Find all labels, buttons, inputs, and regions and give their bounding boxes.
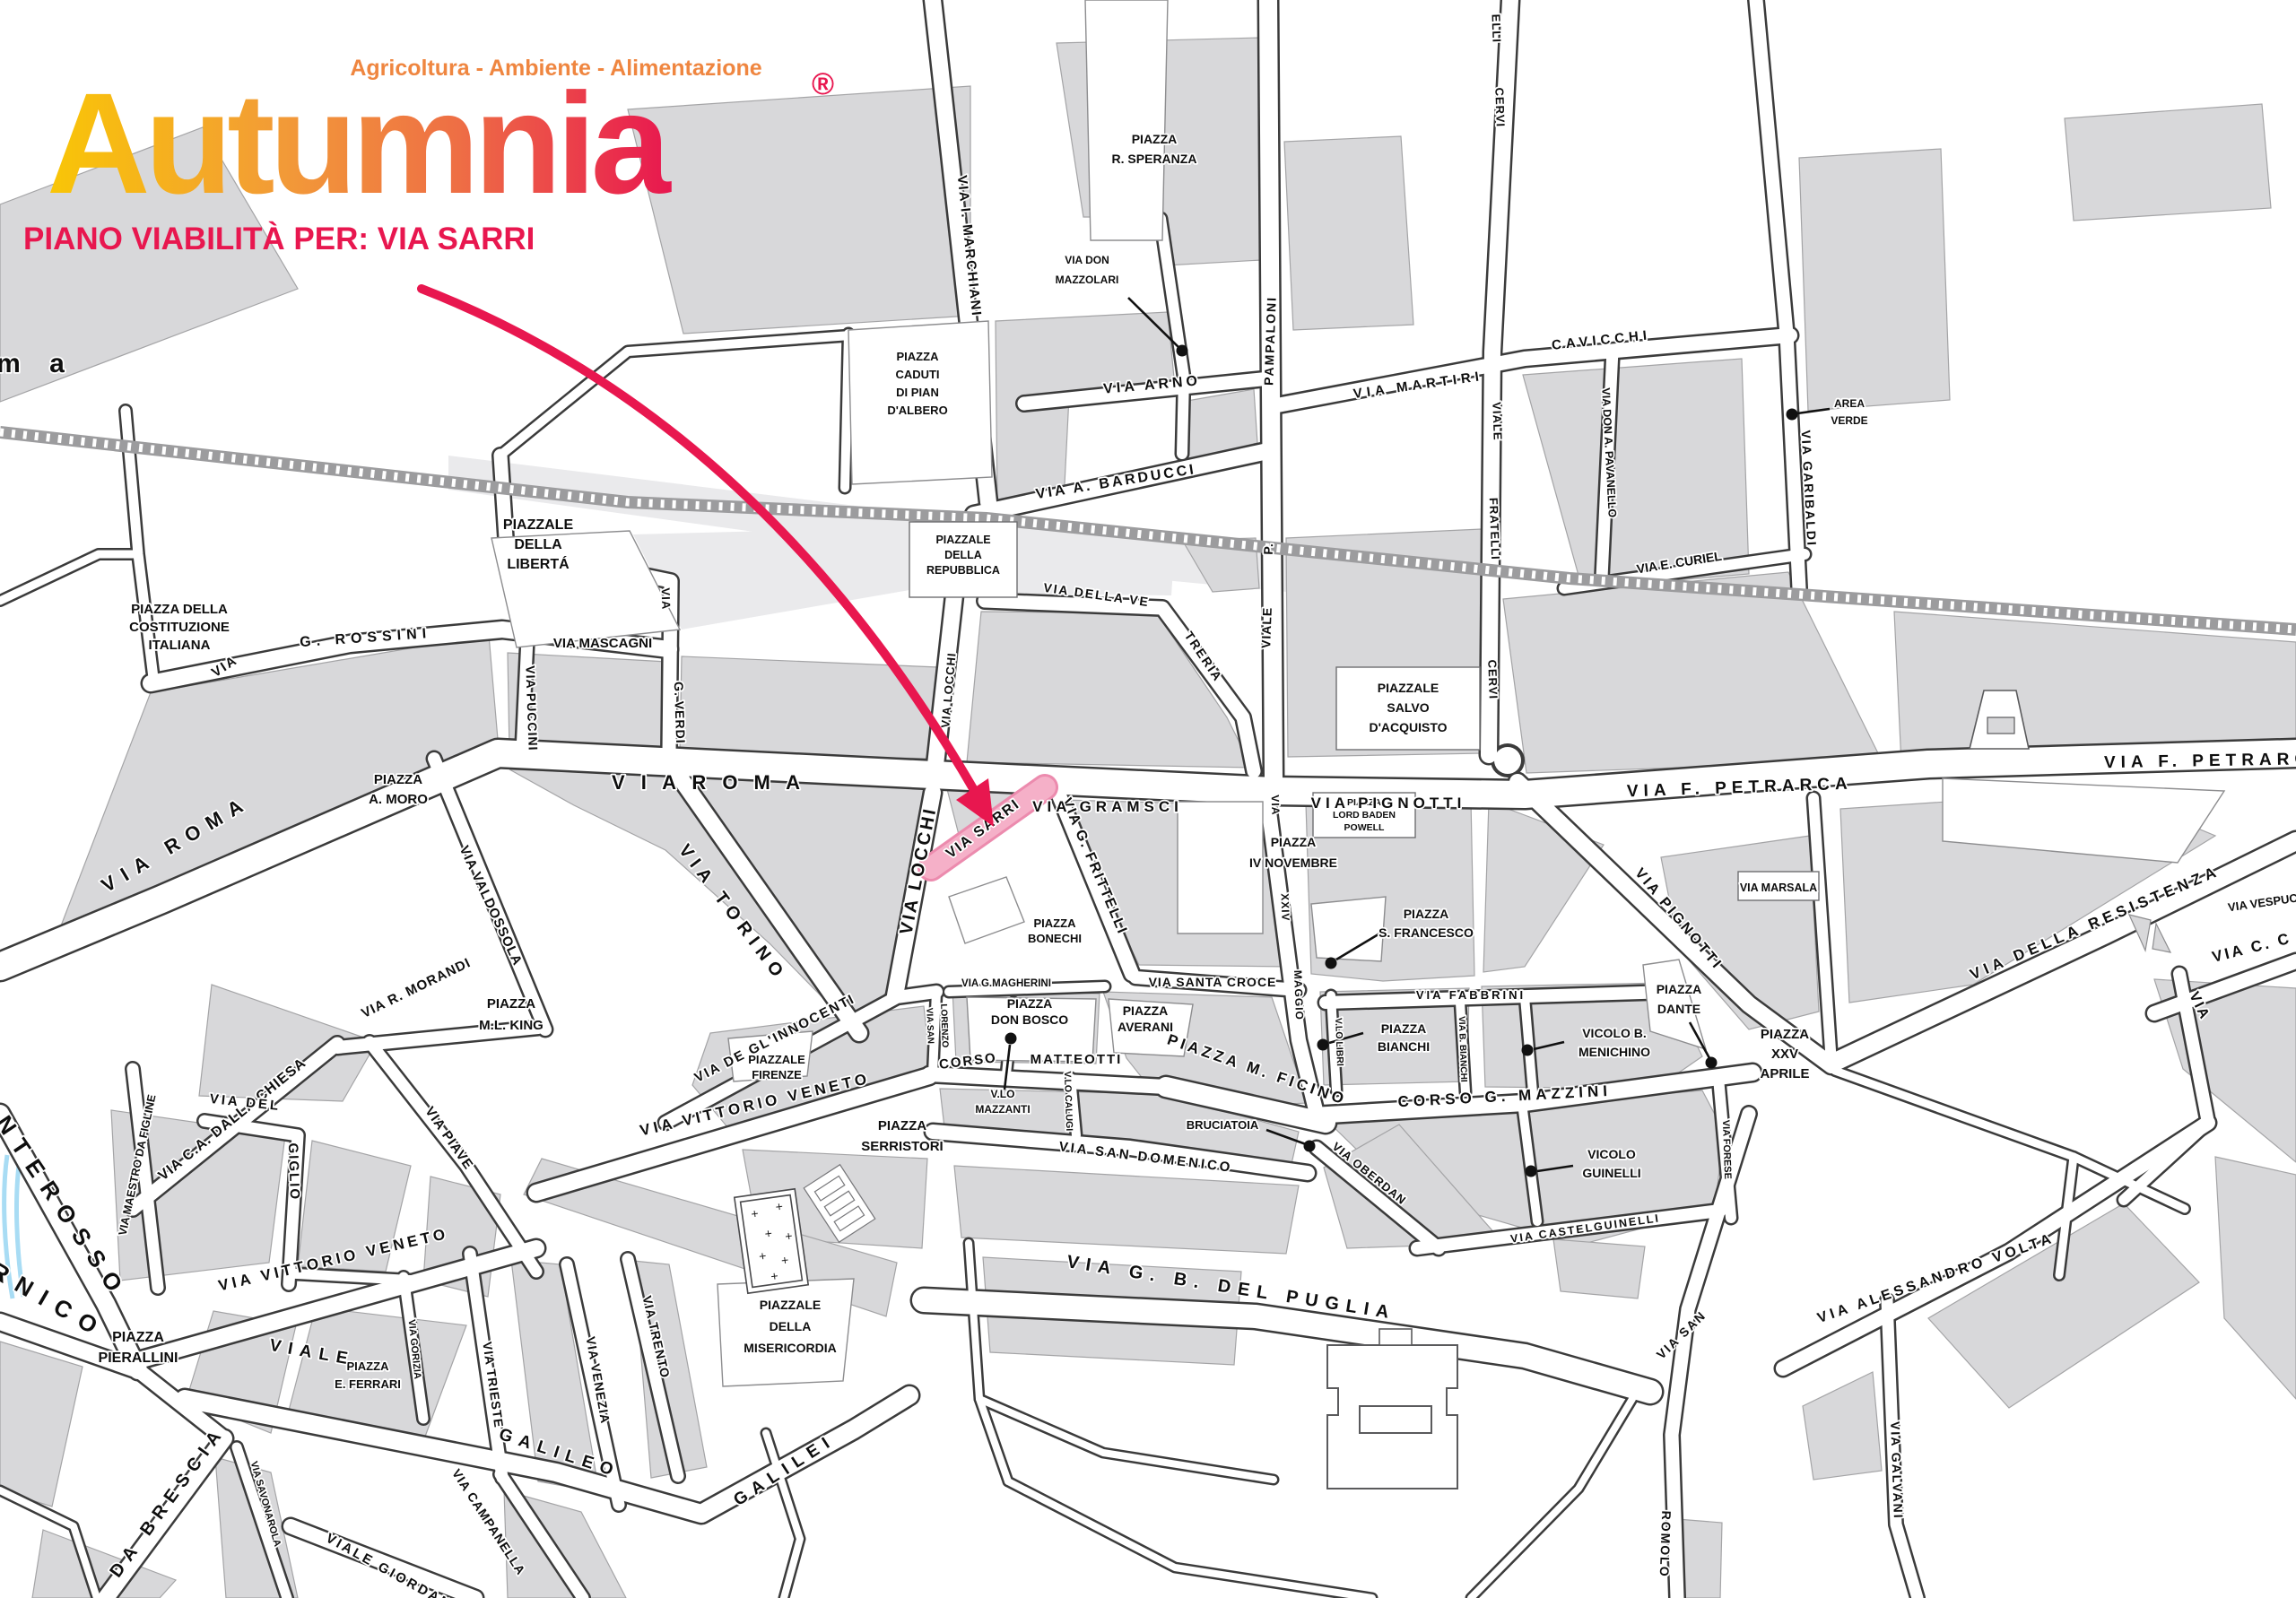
map-subtitle: PIANO VIABILITÀ PER: VIA SARRI [23, 221, 535, 256]
street-label: PIAZZALE [1378, 681, 1439, 695]
street-label: VIA MARSALA [1740, 882, 1817, 894]
street-label: DI PIAN [896, 386, 939, 399]
street-label: V.LO [991, 1088, 1015, 1100]
street-label: PIAZZALE [935, 534, 990, 546]
street-label: m a [0, 349, 75, 378]
street-label: PIAZZA [1657, 982, 1702, 996]
street-label: ITALIANA [149, 638, 211, 653]
street-label: BRUCIATOIA [1187, 1118, 1259, 1132]
street-label: MAGGIO [1291, 970, 1306, 1020]
street-label: PIAZZA [878, 1118, 926, 1133]
street-label: LORENZO [938, 1003, 950, 1047]
city-block [1799, 149, 1950, 411]
street-label: VIA MASCAGNI [553, 636, 652, 651]
street-label: E. FERRARI [335, 1377, 401, 1391]
street-label: APRILE [1760, 1066, 1809, 1081]
street-label: XXIV [1278, 893, 1291, 922]
street-label: DANTE [1657, 1002, 1700, 1016]
street-label: FRATELLI [1487, 498, 1502, 560]
street-label: PIAZZA [1123, 1003, 1169, 1018]
street-label: REPUBBLICA [926, 564, 1000, 577]
street-label: LIBERTÁ [507, 555, 570, 572]
street-label: PIAZZA DELLA [131, 602, 228, 617]
overpass-inner [1987, 717, 2014, 734]
street-label: VIA PIGNOTTI [1311, 795, 1466, 812]
street-label: M.L. KING [479, 1018, 544, 1033]
street-label: MATTEOTTI [1031, 1052, 1123, 1067]
street-label: VIA SAN [924, 1008, 935, 1045]
poi-dot [1304, 1141, 1316, 1152]
street-label: MAZZANTI [975, 1103, 1030, 1116]
street-label: PIERALLINI [99, 1350, 178, 1366]
piazza [848, 321, 992, 484]
street-label: ROMOLO [1657, 1510, 1674, 1578]
street-label: PIAZZA [897, 350, 940, 363]
street-label: VICOLO B. [1582, 1026, 1647, 1040]
street-label: VICOLO [1587, 1147, 1636, 1161]
street-label: DELLA [770, 1319, 812, 1333]
city-block [1553, 1239, 1645, 1298]
street-label: D'ACQUISTO [1369, 720, 1447, 734]
street-label: D'ALBERO [887, 404, 947, 417]
street-label: VIA DON [1065, 254, 1109, 266]
city-map: +++++++m aPIAZZA DELLACOSTITUZIONEITALIA… [0, 0, 2296, 1598]
city-block [1284, 136, 1413, 330]
street-label: AVERANI [1118, 1020, 1173, 1034]
street-label: MAZZOLARI [1056, 274, 1119, 286]
cemetery-symbol: +++++++ [735, 1189, 808, 1293]
poi-dot [1522, 1045, 1534, 1056]
street-label: MISERICORDIA [744, 1341, 836, 1355]
street-label: PIAZZA [1381, 1021, 1427, 1036]
street-label: PIAZZA [1007, 996, 1053, 1011]
street-label: VIA [659, 587, 674, 610]
street-label: BONECHI [1028, 932, 1082, 945]
street-label: VIA PUCCINI [523, 665, 540, 751]
street-label: VIA SANTA CROCE [1149, 975, 1277, 989]
street-label: FIRENZE [752, 1068, 802, 1081]
street-label: MENICHINO [1578, 1045, 1650, 1059]
street-label: VIA [1269, 795, 1283, 815]
street-label: VIA FABBRINI [1416, 988, 1526, 1002]
street-label: CADUTI [895, 368, 939, 381]
street-label: XXV [1771, 1047, 1798, 1062]
road [1268, 0, 1274, 778]
street-label: PIAZZA [1132, 132, 1178, 146]
street-label: GIGLIO [285, 1142, 302, 1201]
street-label: V I A R O M A [612, 771, 805, 794]
street-label: R. SPERANZA [1112, 152, 1197, 166]
street-label: ELLI [1489, 14, 1503, 44]
road [845, 334, 848, 488]
street-label: BIANCHI [1378, 1039, 1430, 1054]
street-label: VIA G.MAGHERINI [961, 978, 1051, 989]
poi-dot [1318, 1039, 1329, 1051]
street-label: G. VERDI [672, 682, 688, 744]
street-label: PIAZZALE [748, 1053, 805, 1066]
poi-dot [1706, 1057, 1718, 1069]
street-label: V.LO LIBRI [1333, 1018, 1345, 1066]
poi-dot [1005, 1033, 1017, 1045]
logo-wordmark: Autumnia [47, 63, 672, 223]
poi-dot [1326, 958, 1337, 969]
street-label: A. MORO [369, 792, 428, 807]
page: +++++++m aPIAZZA DELLACOSTITUZIONEITALIA… [0, 0, 2296, 1598]
street-label: VERDE [1831, 414, 1867, 427]
street-label: VIALE [1258, 606, 1274, 648]
street-label: DON BOSCO [991, 1012, 1068, 1027]
street-label: GUINELLI [1582, 1166, 1640, 1180]
street-label: CERVI [1492, 87, 1508, 127]
street-label: V.LO CALUGI [1062, 1071, 1074, 1131]
school-entrance [1379, 1329, 1412, 1345]
roundabout [1494, 747, 1521, 774]
street-label: COSTITUZIONE [129, 620, 230, 635]
street-label: VIA FORESE [1720, 1120, 1733, 1180]
street-label: PIAZZA [112, 1330, 164, 1345]
street-label: DELLA [944, 549, 982, 561]
city-block [2065, 104, 2271, 221]
street-label: VIA F. PETRARCA [2104, 750, 2296, 772]
street-label: PIAZZA [374, 772, 422, 787]
poi-dot [1177, 345, 1188, 357]
street-label: VIA GRAMSCI [1032, 798, 1183, 815]
street-label: PIAZZA [487, 996, 535, 1012]
street-label: PIAZZA [1034, 916, 1077, 930]
street-label: IV NOVEMBRE [1249, 855, 1337, 870]
street-label: DELLA [514, 537, 562, 552]
street-label: P. [1261, 543, 1275, 555]
street-label: POWELL [1344, 822, 1385, 833]
city-block [628, 86, 970, 334]
street-label: PIAZZALE [503, 517, 574, 533]
poi-dot [1526, 1166, 1537, 1177]
street-label: PIAZZA [1761, 1027, 1809, 1042]
street-label: VIALE [1490, 402, 1505, 441]
street-label: CERVI [1485, 659, 1500, 699]
street-label: PIAZZA [1404, 907, 1449, 921]
piazza [1085, 0, 1168, 240]
school-courtyard [1360, 1406, 1431, 1433]
poi-dot [1787, 409, 1798, 421]
street-label: S. FRANCESCO [1378, 925, 1474, 940]
street-label: AREA [1834, 397, 1865, 410]
street-label: PIAZZALE [760, 1298, 821, 1312]
street-label: SERRISTORI [861, 1139, 943, 1154]
registered-mark-icon: ® [812, 67, 834, 101]
street-label: SALVO [1387, 700, 1429, 715]
street-label: PIAZZA [1271, 835, 1317, 849]
